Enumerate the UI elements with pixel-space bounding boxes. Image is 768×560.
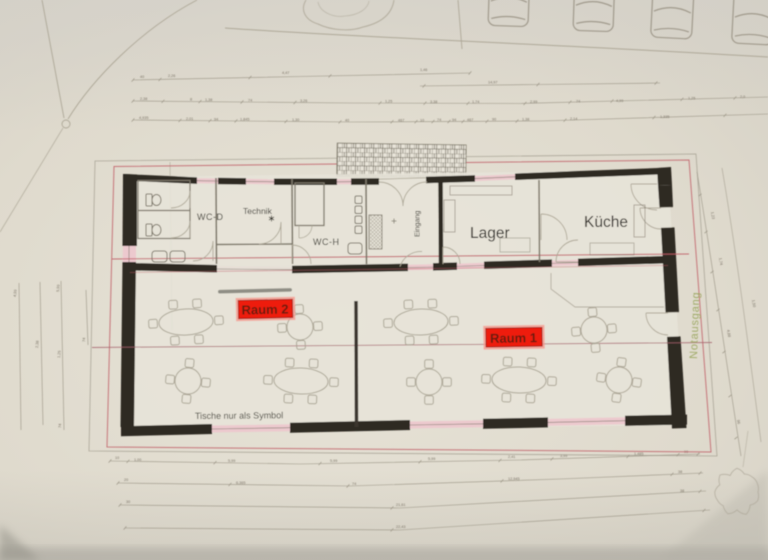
svg-text:38: 38 xyxy=(678,470,682,474)
svg-text:5,99: 5,99 xyxy=(228,459,235,463)
svg-text:Lager: Lager xyxy=(470,225,510,242)
svg-text:1,25: 1,25 xyxy=(688,97,695,101)
svg-text:2,38: 2,38 xyxy=(140,97,147,101)
svg-text:4,47: 4,47 xyxy=(282,71,289,75)
svg-text:40: 40 xyxy=(345,119,349,123)
svg-text:Raum 2: Raum 2 xyxy=(241,302,288,318)
svg-text:12,945: 12,945 xyxy=(508,477,520,481)
svg-text:10: 10 xyxy=(420,119,424,123)
svg-text:2,26: 2,26 xyxy=(168,74,175,78)
svg-text:1,335: 1,335 xyxy=(660,115,670,119)
svg-text:467: 467 xyxy=(467,118,473,122)
svg-text:Technik: Technik xyxy=(243,206,273,216)
svg-text:94: 94 xyxy=(214,118,218,122)
svg-text:2,01: 2,01 xyxy=(186,117,193,121)
svg-text:Notausgang: Notausgang xyxy=(688,291,702,359)
svg-text:Raum 1: Raum 1 xyxy=(490,330,537,346)
svg-text:1,845: 1,845 xyxy=(240,118,250,122)
svg-text:22,43: 22,43 xyxy=(396,525,406,529)
svg-text:90: 90 xyxy=(492,118,496,122)
svg-text:74: 74 xyxy=(576,100,580,104)
svg-text:WC-D: WC-D xyxy=(197,212,224,222)
svg-text:5,99: 5,99 xyxy=(56,284,61,292)
svg-text:1,46: 1,46 xyxy=(420,68,427,72)
svg-text:4,935: 4,935 xyxy=(139,116,149,120)
svg-text:38: 38 xyxy=(680,489,684,493)
svg-text:1,00: 1,00 xyxy=(134,458,141,462)
svg-text:3,26: 3,26 xyxy=(300,99,307,103)
svg-text:14,97: 14,97 xyxy=(488,81,498,85)
svg-text:74: 74 xyxy=(248,99,252,103)
svg-text:2,14: 2,14 xyxy=(570,117,577,121)
svg-text:1,38: 1,38 xyxy=(205,98,212,102)
svg-text:30: 30 xyxy=(126,500,130,504)
svg-text:20: 20 xyxy=(124,478,128,482)
svg-text:4,99: 4,99 xyxy=(13,289,18,297)
svg-text:8: 8 xyxy=(190,98,192,102)
svg-text:21,61: 21,61 xyxy=(396,503,406,507)
svg-text:5,99: 5,99 xyxy=(428,457,435,461)
svg-text:WC-H: WC-H xyxy=(313,237,340,247)
svg-text:467: 467 xyxy=(398,119,404,123)
svg-text:2,38: 2,38 xyxy=(35,340,40,348)
svg-text:1,30: 1,30 xyxy=(292,118,299,122)
svg-text:2,41: 2,41 xyxy=(508,455,515,459)
svg-text:2,0: 2,0 xyxy=(740,95,745,99)
svg-text:74: 74 xyxy=(352,482,356,486)
svg-text:1,74: 1,74 xyxy=(472,100,479,104)
svg-text:74: 74 xyxy=(58,424,62,429)
svg-text:96: 96 xyxy=(736,419,741,424)
svg-text:94: 94 xyxy=(452,118,456,122)
svg-text:74: 74 xyxy=(437,118,441,122)
svg-text:4,99: 4,99 xyxy=(616,99,623,103)
svg-text:1,25: 1,25 xyxy=(385,100,392,104)
svg-text:1,38: 1,38 xyxy=(522,118,529,122)
svg-text:2,99: 2,99 xyxy=(530,100,537,104)
svg-text:40: 40 xyxy=(140,75,144,79)
svg-text:6,365: 6,365 xyxy=(236,481,246,485)
svg-text:10: 10 xyxy=(115,456,119,460)
svg-text:74: 74 xyxy=(82,338,86,343)
svg-text:3,38: 3,38 xyxy=(430,100,437,104)
svg-text:Küche: Küche xyxy=(584,214,628,231)
svg-text:5,99: 5,99 xyxy=(330,459,337,463)
svg-text:1,25: 1,25 xyxy=(57,350,62,358)
svg-text:Tische nur als Symbol: Tische nur als Symbol xyxy=(195,410,283,421)
svg-text:Eingang: Eingang xyxy=(413,211,422,237)
